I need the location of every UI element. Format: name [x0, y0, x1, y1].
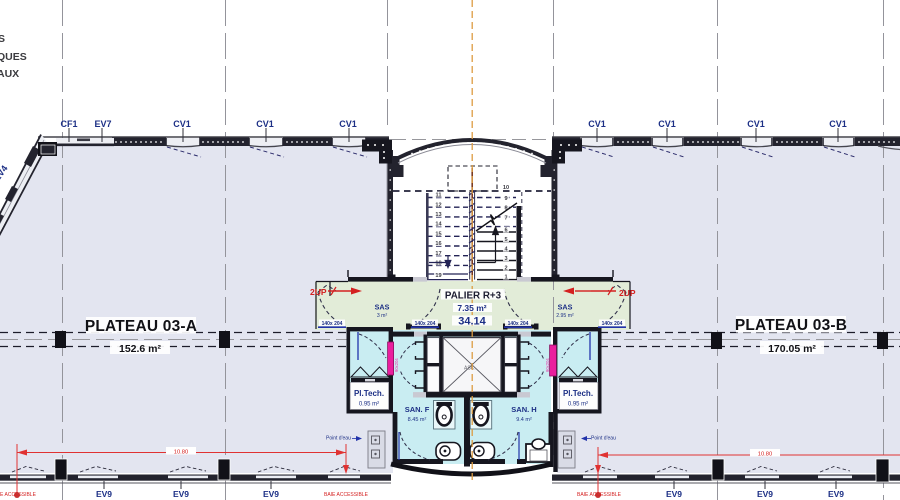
svg-text:7.35 m²: 7.35 m²	[457, 303, 486, 313]
svg-text:SAS: SAS	[375, 303, 390, 312]
svg-text:BAIE ACCESSIBLE: BAIE ACCESSIBLE	[324, 492, 369, 498]
svg-text:19: 19	[435, 273, 441, 279]
svg-text:AUX: AUX	[0, 68, 19, 80]
svg-text:140x 204: 140x 204	[602, 321, 623, 327]
svg-text:Point d'eau: Point d'eau	[326, 436, 351, 442]
svg-text:CV1: CV1	[256, 119, 274, 129]
svg-text:10: 10	[503, 185, 509, 191]
svg-text:Pl.Tech.: Pl.Tech.	[563, 389, 593, 398]
svg-text:EV9: EV9	[96, 489, 112, 499]
svg-text:PLATEAU 03-A: PLATEAU 03-A	[85, 318, 197, 335]
svg-text:16: 16	[435, 241, 441, 247]
svg-text:CV1: CV1	[658, 119, 676, 129]
svg-text:PLATEAU 03-B: PLATEAU 03-B	[735, 317, 847, 334]
svg-text:90x204: 90x204	[545, 358, 550, 372]
svg-text:12: 12	[435, 202, 441, 208]
svg-text:15: 15	[435, 231, 441, 237]
svg-text:140x 204: 140x 204	[508, 321, 529, 327]
svg-text:ASC.: ASC.	[464, 366, 476, 372]
svg-text:18: 18	[435, 261, 441, 267]
svg-text:SAN. H: SAN. H	[511, 405, 536, 414]
svg-text:17: 17	[435, 251, 441, 257]
svg-text:EV9: EV9	[666, 489, 682, 499]
svg-text:9: 9	[504, 196, 507, 202]
svg-text:S: S	[0, 33, 5, 45]
svg-text:8.45 m²: 8.45 m²	[408, 417, 427, 423]
svg-text:0.95 m²: 0.95 m²	[359, 402, 379, 408]
svg-text:QUES: QUES	[0, 51, 27, 63]
svg-text:140x 204: 140x 204	[415, 321, 436, 327]
svg-text:3 m²: 3 m²	[377, 313, 388, 319]
svg-text:SAS: SAS	[558, 303, 573, 312]
svg-text:11: 11	[436, 193, 442, 199]
svg-text:5: 5	[504, 237, 507, 243]
svg-text:2.95 m²: 2.95 m²	[556, 313, 574, 319]
svg-text:CV1: CV1	[829, 119, 847, 129]
svg-text:2UP: 2UP	[310, 287, 327, 297]
svg-text:140x 204: 140x 204	[322, 321, 343, 327]
svg-text:CV1: CV1	[173, 119, 191, 129]
svg-text:BAIE ACCESSIBLE: BAIE ACCESSIBLE	[0, 492, 37, 498]
svg-text:13: 13	[435, 212, 441, 218]
svg-text:EV9: EV9	[173, 489, 189, 499]
svg-text:EV9: EV9	[757, 489, 773, 499]
svg-text:9.4 m²: 9.4 m²	[516, 417, 532, 423]
svg-text:EV7: EV7	[94, 119, 111, 129]
svg-text:0.95 m²: 0.95 m²	[568, 402, 588, 408]
svg-text:10.80: 10.80	[174, 450, 189, 456]
svg-text:2UP: 2UP	[619, 288, 636, 298]
svg-text:CV1: CV1	[339, 119, 357, 129]
svg-text:CV1: CV1	[588, 119, 606, 129]
svg-text:90x204: 90x204	[394, 358, 399, 372]
svg-text:SAN. F: SAN. F	[405, 405, 430, 414]
svg-text:10.80: 10.80	[758, 452, 773, 458]
svg-text:34.14: 34.14	[458, 316, 486, 328]
svg-text:CV1: CV1	[747, 119, 765, 129]
svg-text:Pl.Tech.: Pl.Tech.	[354, 389, 384, 398]
svg-text:1: 1	[504, 275, 507, 281]
svg-text:PALIER R+3: PALIER R+3	[445, 291, 502, 302]
svg-text:Point d'eau: Point d'eau	[591, 436, 616, 442]
svg-text:3: 3	[504, 256, 507, 262]
svg-text:6: 6	[504, 228, 507, 234]
svg-text:14: 14	[435, 222, 442, 228]
svg-text:EV9: EV9	[263, 489, 279, 499]
svg-text:7: 7	[504, 215, 507, 221]
svg-text:CF1: CF1	[60, 119, 77, 129]
svg-text:BAIE ACCESSIBLE: BAIE ACCESSIBLE	[577, 492, 622, 498]
svg-text:152.6 m²: 152.6 m²	[119, 343, 162, 355]
svg-text:2: 2	[504, 266, 507, 272]
svg-text:170.05 m²: 170.05 m²	[768, 343, 816, 355]
svg-text:EV9: EV9	[828, 489, 844, 499]
